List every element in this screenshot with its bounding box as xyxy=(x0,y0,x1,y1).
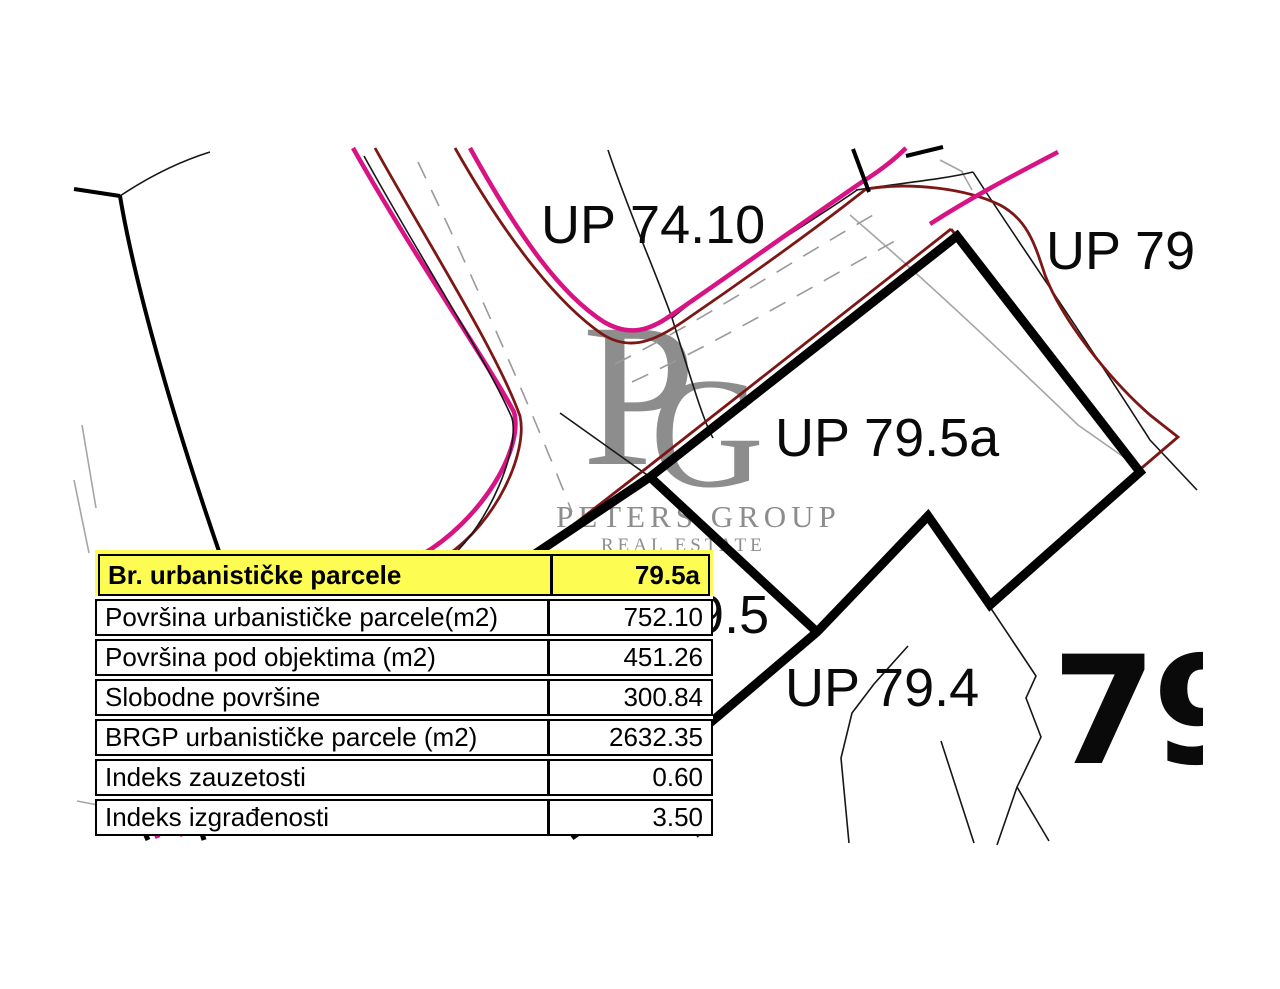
row-label: Slobodne površine xyxy=(97,681,550,714)
table-header-highlight: Br. urbanističke parcele 79.5a xyxy=(95,550,713,596)
table-row: Indeks zauzetosti 0.60 xyxy=(95,759,713,796)
parcel-label-up-79: UP 79 xyxy=(1046,224,1195,278)
row-label: Indeks zauzetosti xyxy=(97,761,550,794)
header-label: Br. urbanističke parcele xyxy=(100,556,553,594)
table-row: Slobodne površine 300.84 xyxy=(95,679,713,716)
table-row: Površina urbanističke parcele(m2) 752.10 xyxy=(95,599,713,636)
plan-screenshot: P G PETERS GROUP REAL ESTATE xyxy=(0,0,1280,989)
parcel-data-table: Br. urbanističke parcele 79.5a Površina … xyxy=(95,550,713,836)
row-value: 451.26 xyxy=(550,641,711,674)
parcel-label-up-79-5a: UP 79.5a xyxy=(775,411,999,465)
row-label: Površina urbanističke parcele(m2) xyxy=(97,601,550,634)
parcel-label-up-79-4: UP 79.4 xyxy=(785,661,979,715)
row-value: 0.60 xyxy=(550,761,711,794)
header-value: 79.5a xyxy=(553,556,708,594)
row-label: BRGP urbanističke parcele (m2) xyxy=(97,721,550,754)
row-value: 300.84 xyxy=(550,681,711,714)
table-row: BRGP urbanističke parcele (m2) 2632.35 xyxy=(95,719,713,756)
row-label: Površina pod objektima (m2) xyxy=(97,641,550,674)
block-label-79: 79 xyxy=(1052,637,1203,787)
row-value: 2632.35 xyxy=(550,721,711,754)
row-label: Indeks izgrađenosti xyxy=(97,801,550,834)
table-header-row: Br. urbanističke parcele 79.5a xyxy=(98,554,710,596)
table-row: Površina pod objektima (m2) 451.26 xyxy=(95,639,713,676)
parcel-label-up-74-10: UP 74.10 xyxy=(541,198,765,252)
row-value: 752.10 xyxy=(550,601,711,634)
table-row: Indeks izgrađenosti 3.50 xyxy=(95,799,713,836)
row-value: 3.50 xyxy=(550,801,711,834)
table-rows: Površina urbanističke parcele(m2) 752.10… xyxy=(95,599,713,836)
